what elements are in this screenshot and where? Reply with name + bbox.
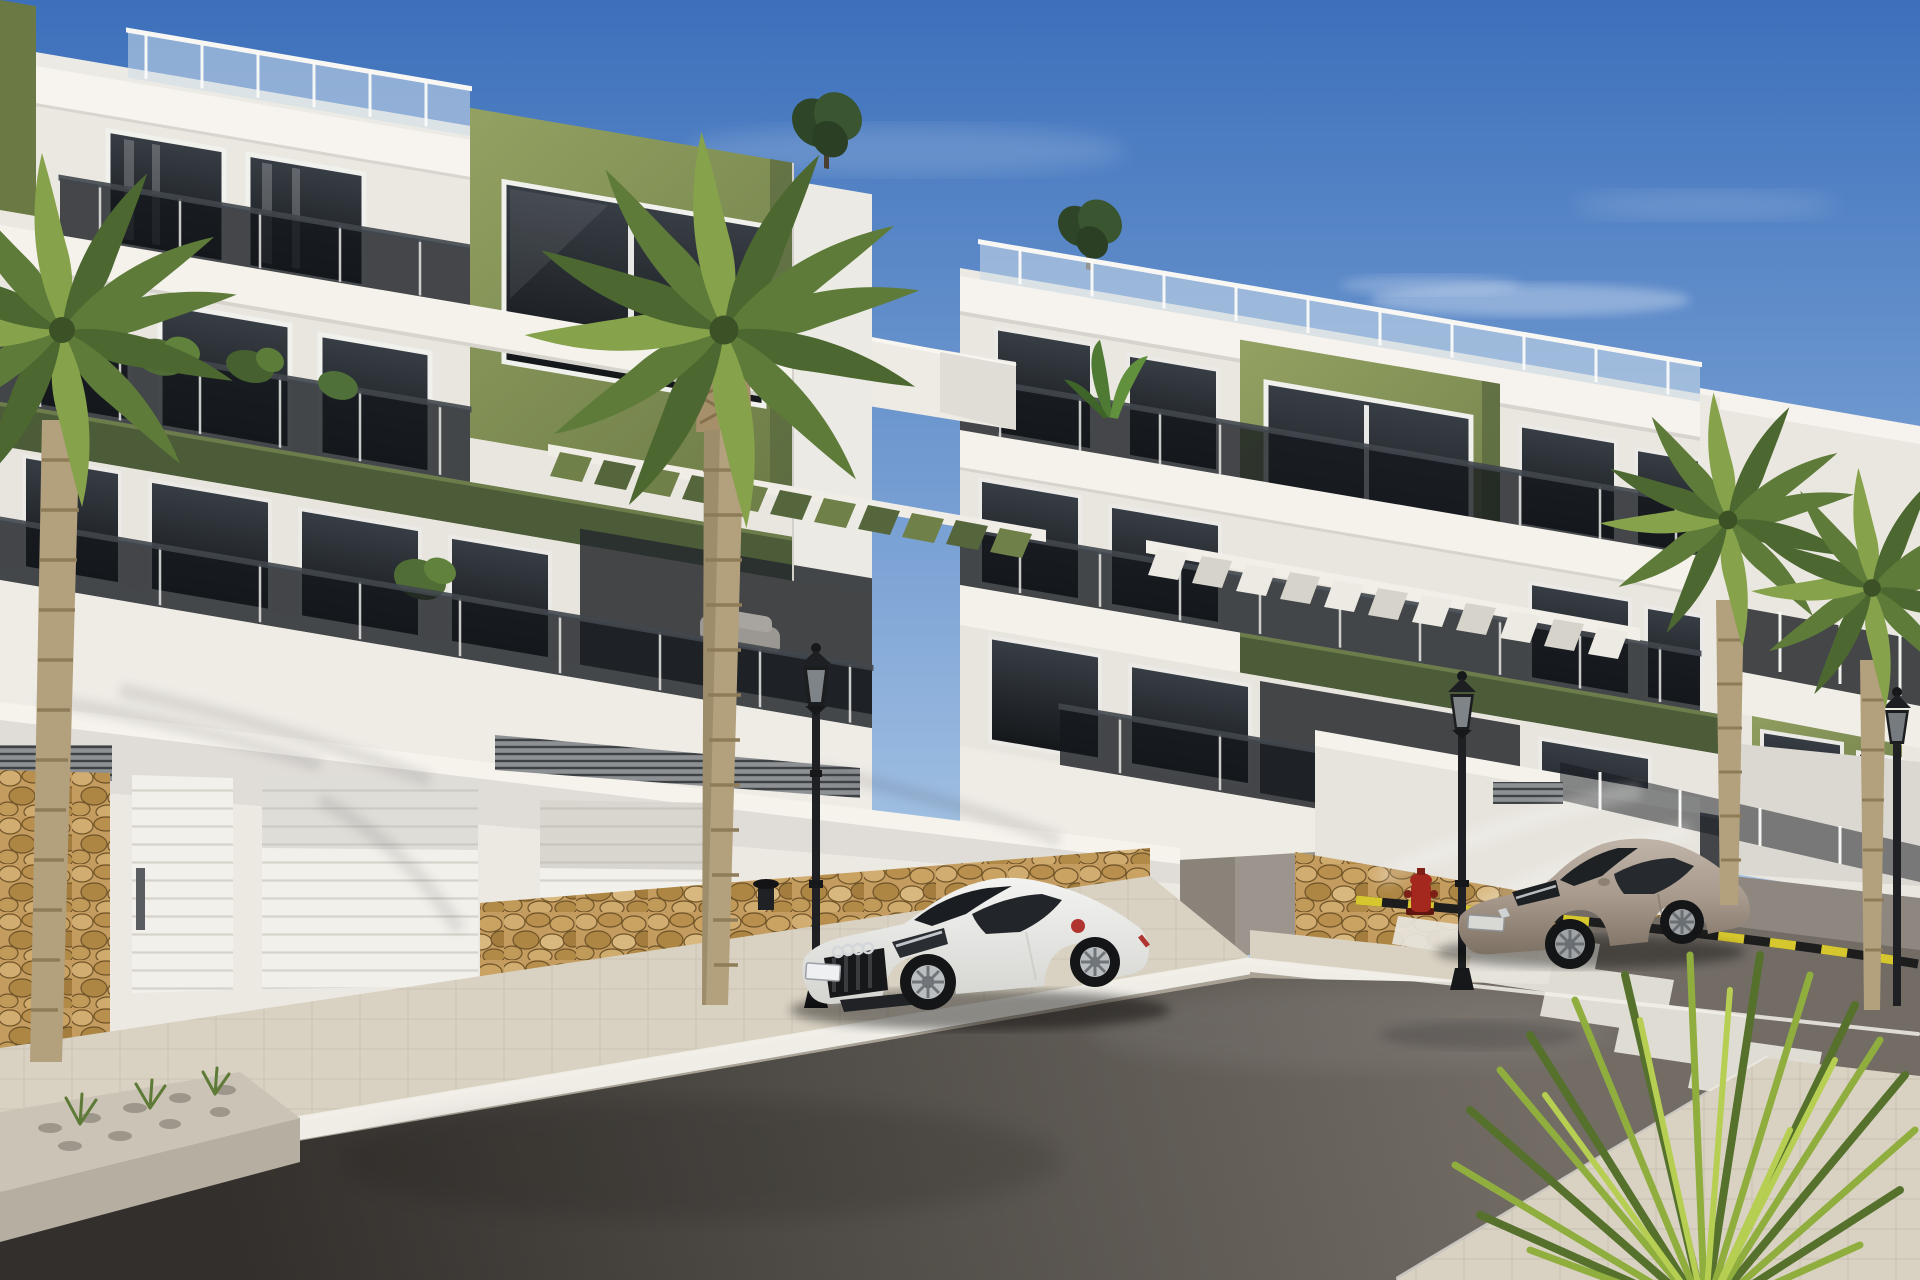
license-plate	[1468, 915, 1505, 931]
red-interior-item	[1071, 919, 1085, 933]
front-wheel	[1545, 919, 1595, 969]
door-handle	[136, 868, 145, 930]
render-canvas	[0, 0, 1920, 1280]
vent-grille-icon	[1493, 782, 1563, 804]
side-mirror	[1598, 878, 1610, 886]
side-mirror	[947, 919, 961, 929]
rear-wheel	[1660, 900, 1704, 944]
pedestrian-door	[132, 775, 233, 993]
rear-wheel	[1070, 937, 1120, 987]
license-plate	[805, 963, 840, 981]
front-wheel	[900, 954, 956, 1010]
accent-column	[0, 0, 36, 216]
